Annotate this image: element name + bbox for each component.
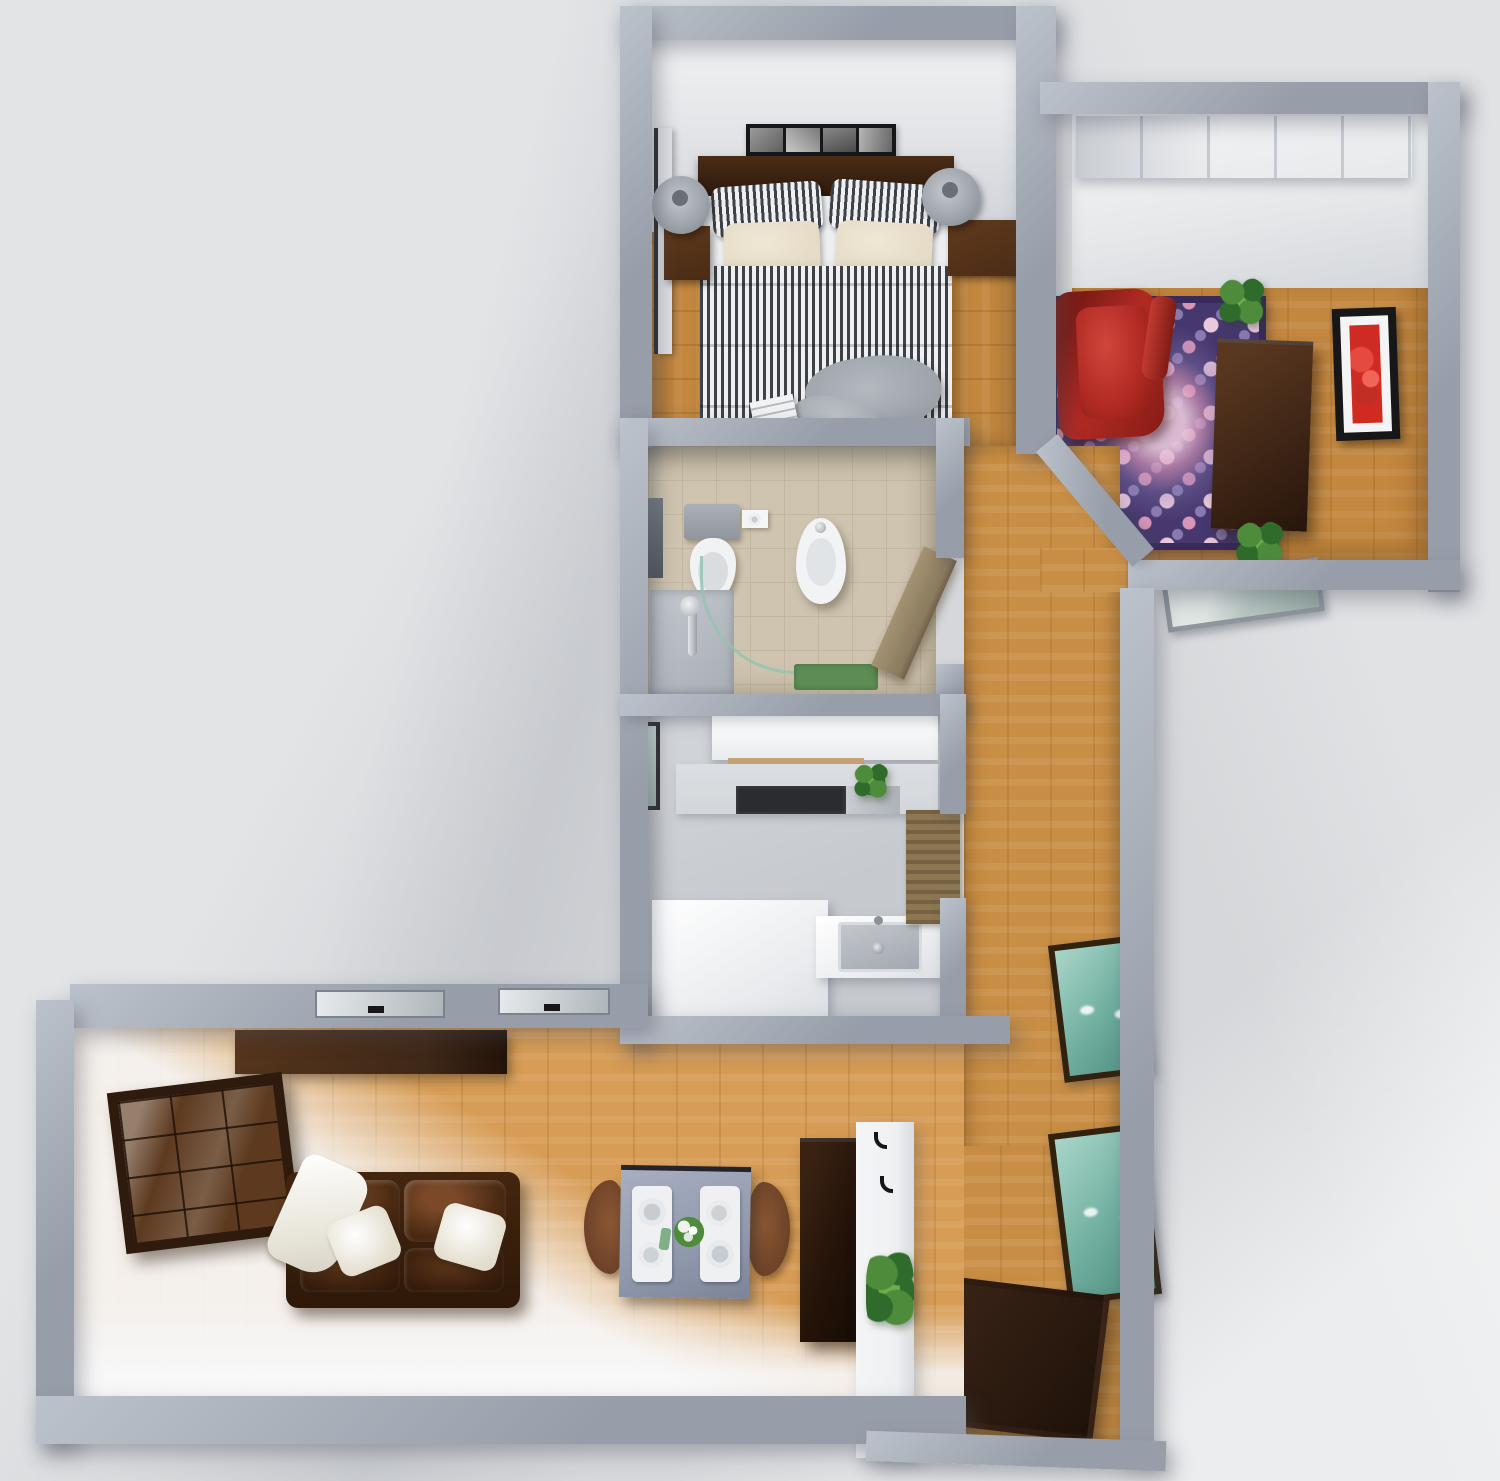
table-flowers — [672, 1214, 706, 1250]
glass-display-cabinet — [107, 1072, 301, 1254]
plate — [706, 1200, 732, 1226]
floorplan-canvas — [0, 0, 1500, 1481]
plate — [706, 1240, 734, 1268]
plate — [638, 1198, 666, 1226]
cabinet-glass-shelves — [118, 1083, 290, 1243]
partition-plant — [866, 1244, 914, 1340]
living-wall-shelf — [235, 1030, 507, 1074]
tall-cabinet — [800, 1138, 864, 1342]
room-living — [0, 0, 1500, 1481]
